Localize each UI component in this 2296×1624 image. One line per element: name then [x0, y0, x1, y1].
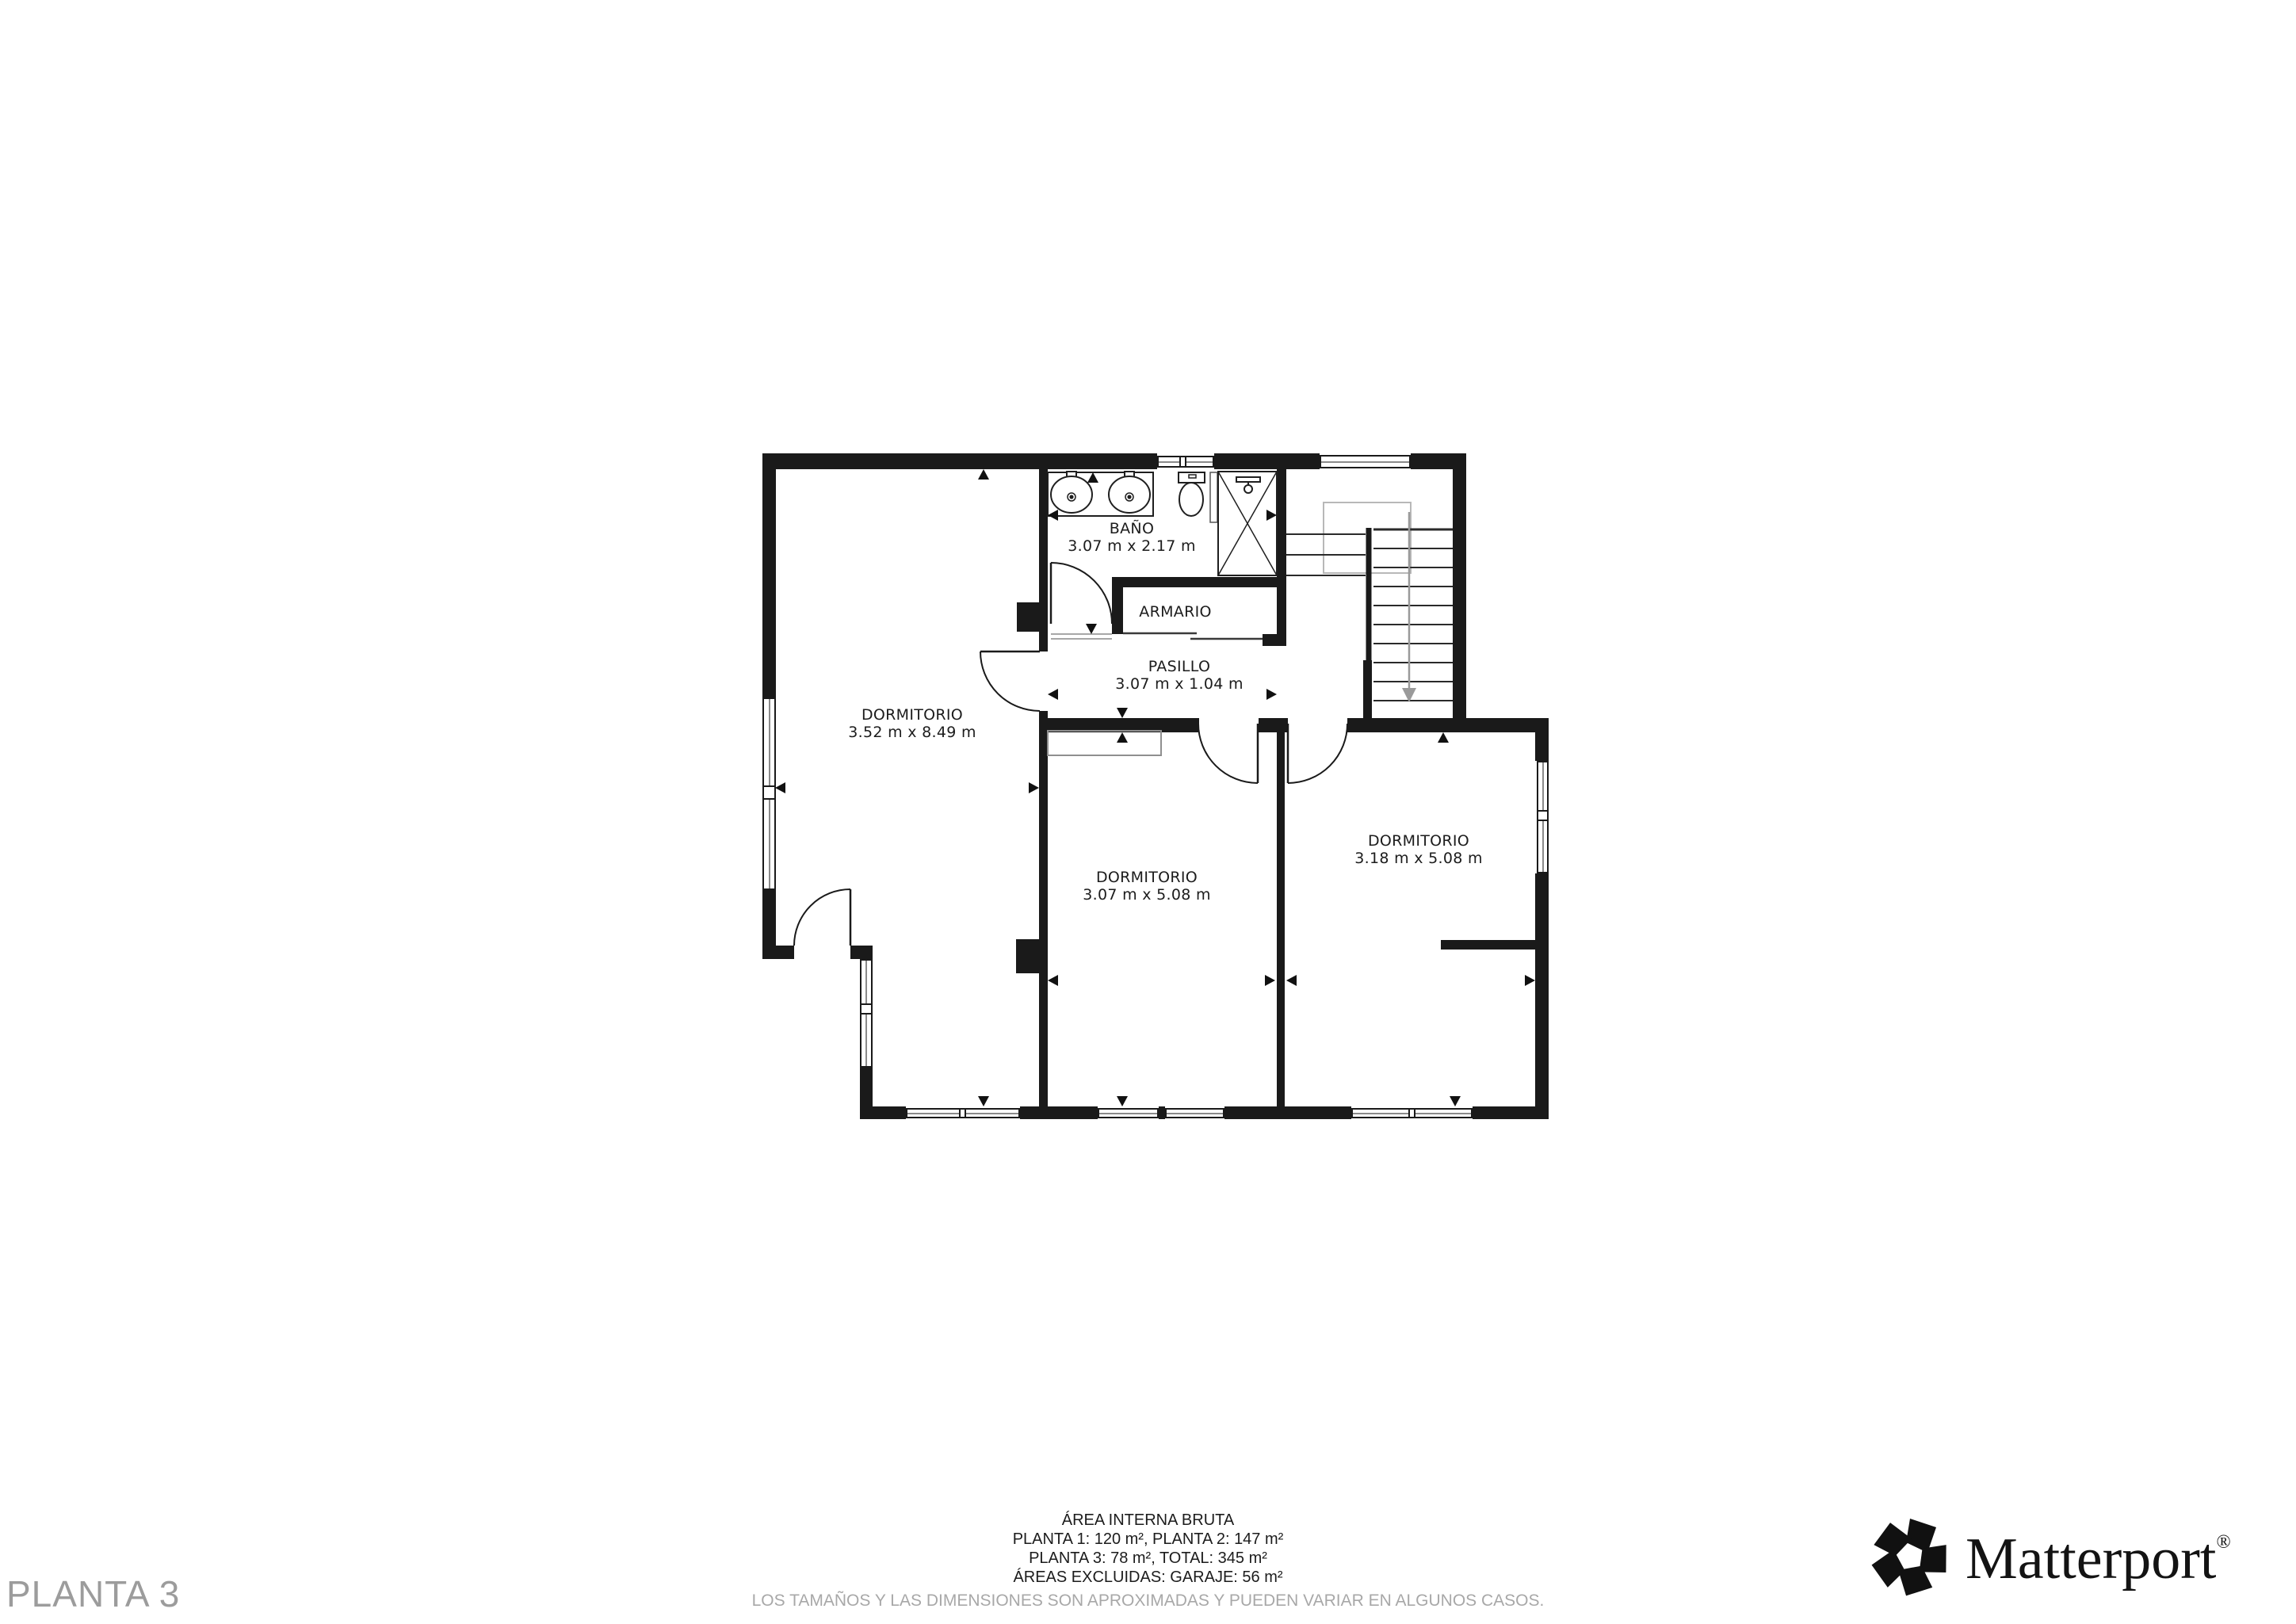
sink-icon	[1048, 472, 1153, 516]
room-label-dormitorio-right: DORMITORIO 3.18 m x 5.08 m	[1354, 832, 1483, 867]
door-swing-icon	[794, 563, 1347, 946]
shower-icon	[1210, 472, 1277, 575]
matterport-wordmark: Matterport®	[1966, 1530, 2231, 1588]
toilet-icon	[1179, 472, 1205, 516]
room-dims: 3.07 m x 1.04 m	[1115, 675, 1244, 693]
room-name: DORMITORIO	[1083, 869, 1211, 886]
floorplan-page: DORMITORIO 3.52 m x 8.49 m BAÑO 3.07 m x…	[0, 0, 2296, 1624]
room-label-dormitorio-left: DORMITORIO 3.52 m x 8.49 m	[848, 706, 976, 741]
room-label-pasillo: PASILLO 3.07 m x 1.04 m	[1115, 658, 1244, 693]
plan-symbols	[0, 0, 2296, 1624]
room-name: BAÑO	[1068, 520, 1196, 537]
room-name: DORMITORIO	[1354, 832, 1483, 850]
matterport-logo-icon	[1870, 1512, 1950, 1601]
dimension-arrow-icon	[775, 469, 1535, 1106]
room-name: DORMITORIO	[848, 706, 976, 724]
page-title: PLANTA 3	[6, 1572, 180, 1615]
room-name: ARMARIO	[1139, 603, 1211, 621]
room-dims: 3.07 m x 2.17 m	[1068, 537, 1196, 555]
room-dims: 3.07 m x 5.08 m	[1083, 886, 1211, 904]
wardrobe-outline	[1048, 731, 1161, 755]
registered-mark: ®	[2216, 1532, 2230, 1553]
room-label-bano: BAÑO 3.07 m x 2.17 m	[1068, 520, 1196, 555]
room-label-armario: ARMARIO	[1139, 603, 1211, 621]
room-name: PASILLO	[1115, 658, 1244, 675]
brand-logo: Matterport®	[1870, 1512, 2283, 1607]
stair-direction-arrow	[1402, 512, 1416, 702]
stairs-icon	[1286, 528, 1453, 701]
room-dims: 3.18 m x 5.08 m	[1354, 850, 1483, 867]
room-dims: 3.52 m x 8.49 m	[848, 724, 976, 741]
sliding-door-icon	[1123, 633, 1263, 639]
threshold	[1051, 634, 1112, 639]
room-label-dormitorio-center: DORMITORIO 3.07 m x 5.08 m	[1083, 869, 1211, 904]
brand-name-text: Matterport	[1966, 1527, 2216, 1592]
